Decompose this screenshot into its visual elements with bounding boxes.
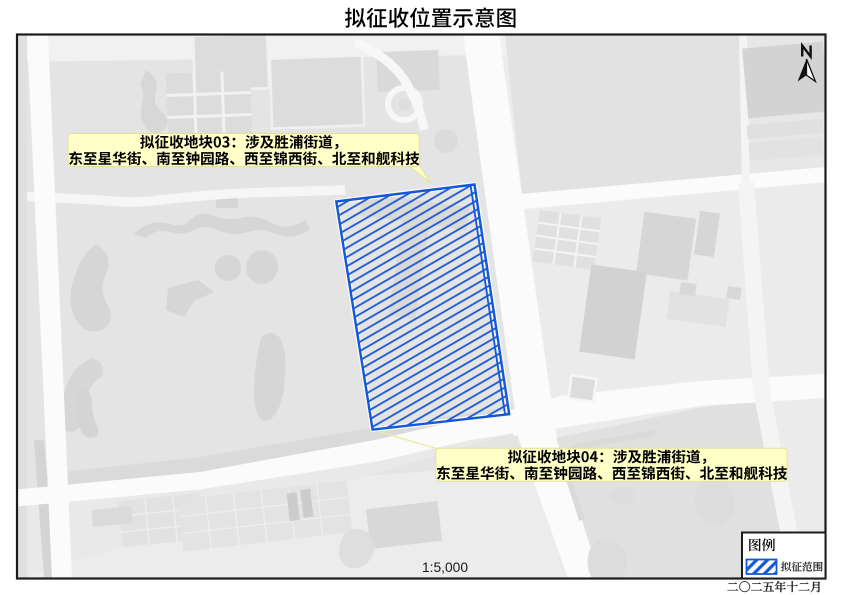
svg-text:1:5,000: 1:5,000 — [422, 560, 468, 575]
